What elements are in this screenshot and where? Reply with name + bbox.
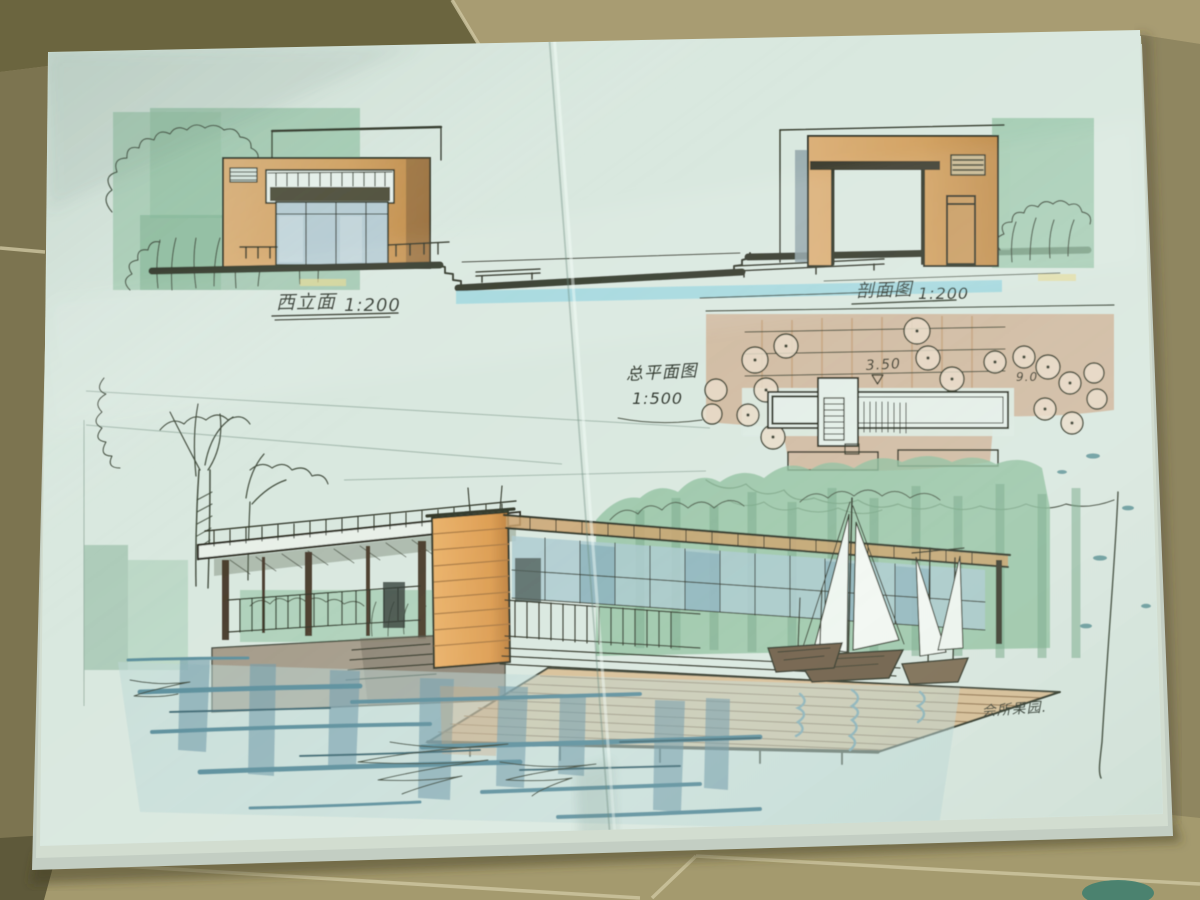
marker-sketch-artwork: 西立面 1:200 xyxy=(40,30,1163,856)
photo-of-architectural-sketch: 西立面 1:200 xyxy=(0,0,1200,900)
scene-canvas: 西立面 1:200 xyxy=(0,0,1200,900)
paper-lighting-overlay xyxy=(40,30,1163,856)
